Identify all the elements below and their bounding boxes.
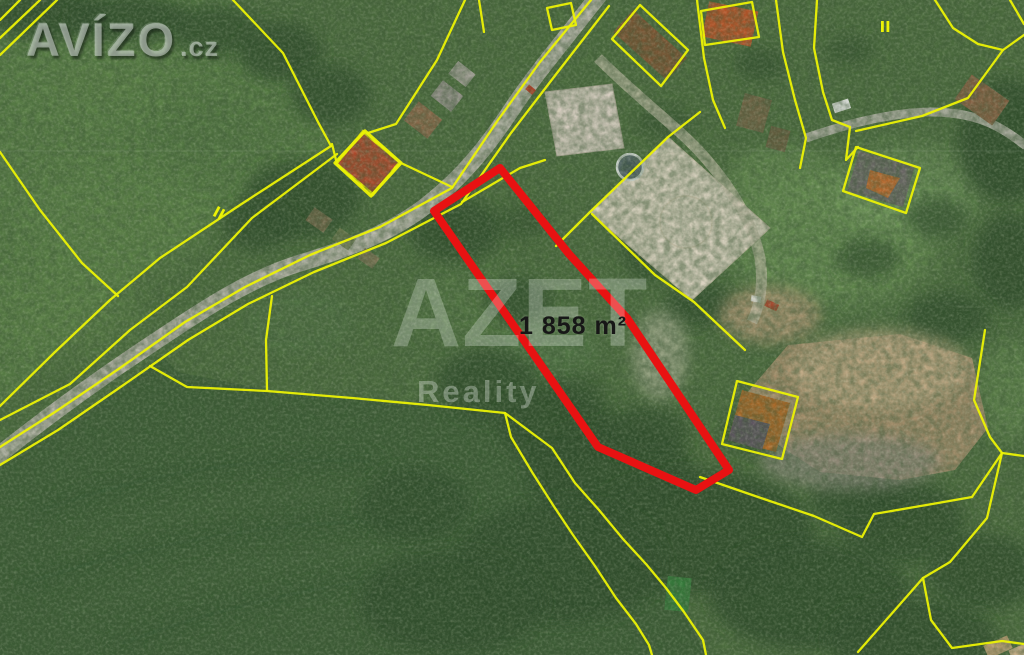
portal-logo-suffix: .cz [180,34,219,61]
cadastral-boundary-line [700,453,1024,537]
cadastral-boundary-line [556,112,700,246]
cadastral-boundary-line [843,147,920,213]
cadastral-boundary-line [0,0,20,20]
cadastral-boundary-line [401,163,452,187]
parcel-double-tick [213,206,225,220]
cadastral-boundary-line [1010,0,1024,24]
cadastral-boundary-line [923,578,1024,648]
cadastral-boundary-line [266,296,272,390]
cadastral-boundary-line [479,0,484,32]
cadastral-boundary-line [612,5,688,86]
agency-watermark-subtitle: Reality [417,376,540,407]
cadastral-boundary-line [701,2,759,45]
plot-area-label: 1 858 m² [519,312,627,341]
cadastral-boundary-line [150,366,706,655]
cadastral-boundary-line [335,131,401,196]
portal-logo: AVÍZO.cz [26,16,219,63]
parcel-double-tick [881,21,889,32]
cadastral-boundary-line [233,0,331,146]
cadastral-boundary-line [505,413,652,655]
cadastral-boundary-line [547,3,576,30]
cadastral-boundary-line [0,152,118,296]
cadastral-boundary-line [974,330,1002,453]
portal-logo-text: AVÍZO [26,16,176,63]
cadastral-boundary-line [776,0,806,168]
aerial-cadastral-map: AVÍZO.cz AZET Reality 1 858 m² [0,0,1024,655]
cadastral-boundary-line [935,0,1003,50]
cadastral-boundary-line [368,0,465,133]
cadastral-boundary-line [0,146,331,406]
cadastral-boundary-line [722,381,798,459]
cadastral-boundary-line [814,0,858,160]
cadastral-boundary-line [0,154,337,420]
